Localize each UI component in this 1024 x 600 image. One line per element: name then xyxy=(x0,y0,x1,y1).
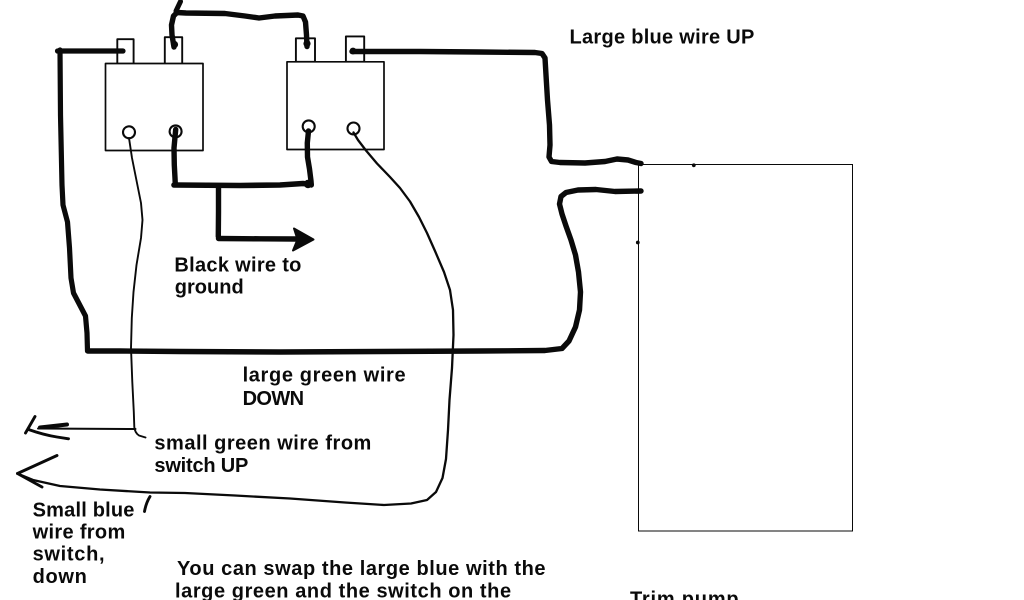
svg-text:Trim pump: Trim pump xyxy=(630,588,739,600)
svg-text:large green wire: large green wire xyxy=(243,364,407,386)
svg-text:switch,: switch, xyxy=(33,544,106,566)
svg-text:Small blue: Small blue xyxy=(33,499,135,521)
svg-text:switch UP: switch UP xyxy=(154,455,248,477)
svg-text:down: down xyxy=(33,566,88,588)
svg-text:Large blue wire UP: Large blue wire UP xyxy=(570,27,755,49)
svg-text:ground: ground xyxy=(175,277,244,299)
svg-text:You can swap the large blue wi: You can swap the large blue with the xyxy=(177,558,546,580)
svg-text:large green and the switch on: large green and the switch on the xyxy=(175,581,512,600)
svg-text:small green wire from: small green wire from xyxy=(154,433,371,455)
svg-text:wire from: wire from xyxy=(32,522,126,544)
svg-text:Black wire to: Black wire to xyxy=(174,255,301,277)
svg-text:DOWN: DOWN xyxy=(243,388,304,410)
